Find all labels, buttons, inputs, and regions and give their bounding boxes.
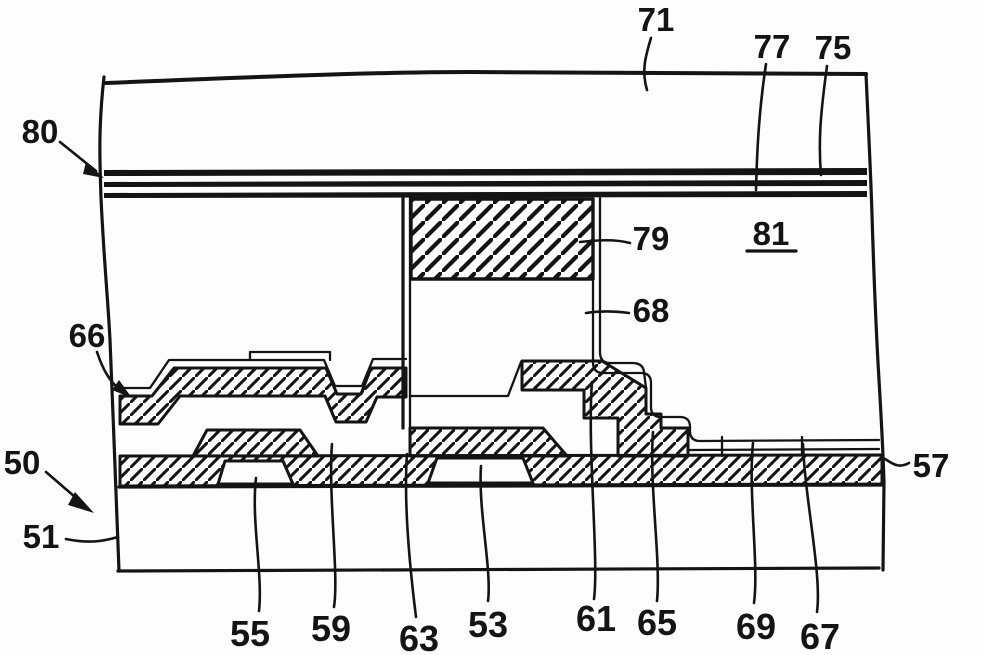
label-68: 68 [633, 292, 670, 329]
reference-numerals: 71 77 75 80 81 79 68 66 50 51 57 55 59 6… [4, 1, 950, 655]
spacer-column [403, 198, 593, 428]
label-80: 80 [22, 113, 59, 150]
lower-substrate-bottom-edge [118, 568, 879, 571]
label-81: 81 [753, 215, 790, 252]
label-75: 75 [815, 29, 852, 66]
upper-plate-thin-layers [104, 168, 867, 198]
spacer-block-79 [411, 199, 593, 279]
figure-outline [100, 72, 884, 571]
label-69: 69 [736, 606, 776, 647]
label-61: 61 [576, 598, 616, 639]
patent-figure-page: 71 77 75 80 81 79 68 66 50 51 57 55 59 6… [0, 0, 982, 655]
leader-71 [644, 38, 651, 90]
label-79: 79 [633, 220, 670, 257]
island-bump-center [410, 428, 567, 456]
via-floor-line [410, 362, 521, 396]
leader-55 [255, 478, 260, 611]
label-50: 50 [4, 444, 41, 481]
label-55: 55 [230, 613, 270, 654]
leader-51 [66, 537, 118, 542]
stepped-band-left [120, 368, 406, 424]
leaders [46, 38, 909, 617]
leader-75 [820, 66, 827, 175]
bottom-strip-57 [120, 455, 882, 486]
label-67: 67 [800, 616, 840, 655]
label-57: 57 [913, 447, 950, 484]
leader-68 [586, 312, 629, 314]
electrode-lower-line [690, 449, 879, 450]
upper-substrate-top-edge [106, 72, 866, 83]
leader-57 [885, 459, 909, 466]
thin-layer-1 [104, 168, 867, 176]
label-66: 66 [69, 317, 106, 354]
thin-layer-2 [104, 180, 867, 187]
label-71: 71 [638, 1, 675, 38]
label-53: 53 [468, 604, 508, 645]
cross-section-diagram: 71 77 75 80 81 79 68 66 50 51 57 55 59 6… [0, 0, 982, 655]
label-65: 65 [637, 602, 677, 643]
label-51: 51 [23, 518, 60, 555]
label-63: 63 [399, 618, 439, 655]
label-77: 77 [754, 28, 791, 65]
label-59: 59 [311, 608, 351, 649]
thin-layer-3 [104, 191, 867, 198]
conformal-step-detail [250, 352, 330, 360]
right-broken-edge [866, 74, 884, 570]
island-bump-left [193, 430, 318, 456]
